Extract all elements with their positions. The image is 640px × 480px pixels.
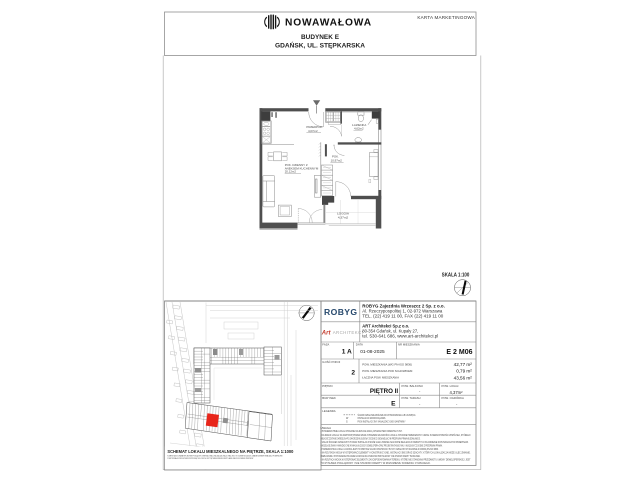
svg-text:POW. MIESZKANIA (WG PN-ISO 983: POW. MIESZKANIA (WG PN-ISO 9836)	[362, 362, 412, 366]
svg-text:POW. OGRÓDKA: POW. OGRÓDKA	[442, 395, 465, 400]
svg-text:PIĘTRO II: PIĘTRO II	[370, 388, 398, 395]
svg-text:PION INSTALACYJNY KANALIZACYJN: PION INSTALACYJNY KANALIZACYJNO-SANITARN…	[358, 420, 406, 423]
svg-text:BUDYNEK E: BUDYNEK E	[301, 34, 340, 41]
svg-text:UWAGA: UWAGA	[321, 426, 332, 430]
svg-text:WIELKOŚĆ ZOSTANIE OKREŚLONA PO: WIELKOŚĆ ZOSTANIE OKREŚLONA PO ZAKOŃCZEN…	[321, 437, 421, 440]
svg-text:tel. 530-641 686, www.art-arch: tel. 530-641 686, www.art-architekci.pl	[362, 333, 438, 338]
svg-text:LEGENDA: LEGENDA	[322, 409, 336, 413]
svg-text:43,56 m²: 43,56 m²	[454, 375, 473, 380]
svg-text:BUDYNEK: BUDYNEK	[322, 396, 336, 400]
svg-text:POWSTRZYMAŁA U PRODUKTEM ROZST: POWSTRZYMAŁA U PRODUKTEM ROZSTRZYGNIĘĆ K…	[167, 457, 253, 460]
svg-text:SCHEMAT LOKALU MIESZKALNEGO NA: SCHEMAT LOKALU MIESZKALNEGO NA PIĘTRZE, …	[167, 449, 294, 454]
svg-text:- NA RZUTACH MOGĄ WYSTĘPOWAĆ E: - NA RZUTACH MOGĄ WYSTĘPOWAĆ ELEMENTY ZA…	[321, 459, 471, 462]
svg-text:- WSZELKIE ZMIANY ARANŻACYJNE: - WSZELKIE ZMIANY ARANŻACYJNE WYMAGAJĄ Z…	[321, 444, 443, 447]
svg-text:NOWAWAŁOWA: NOWAWAŁOWA	[285, 17, 372, 29]
svg-text:0,79 m²: 0,79 m²	[456, 369, 472, 374]
svg-text:KARTA MARKETINGOWA: KARTA MARKETINGOWA	[417, 15, 475, 20]
svg-text:ROBYG: ROBYG	[324, 307, 358, 317]
svg-text:POW. BALKONU: POW. BALKONU	[402, 384, 423, 388]
svg-text:42,77 m²: 42,77 m²	[454, 362, 473, 367]
svg-text:4,62m2: 4,62m2	[354, 126, 364, 130]
svg-text:2: 2	[351, 370, 355, 377]
svg-text:TO RYSUNEK POGLĄDOWY I NIE STA: TO RYSUNEK POGLĄDOWY I NIE STANOWI OFERT…	[321, 462, 431, 465]
svg-text:10,97m2: 10,97m2	[331, 159, 343, 163]
svg-text:TEL. (22) 419 11 00, FAX (22): TEL. (22) 419 11 00, FAX (22) 419 11 00	[362, 314, 444, 319]
svg-text:Art: Art	[321, 330, 332, 336]
svg-text:4,37m²: 4,37m²	[450, 390, 464, 395]
svg-text:ILOŚĆ POKOI: ILOŚĆ POKOI	[322, 359, 340, 364]
svg-text:20,12m2: 20,12m2	[285, 170, 297, 174]
svg-text:01-08-2025: 01-08-2025	[360, 349, 385, 355]
svg-text:GDAŃSK, UL. STĘPKARSKA: GDAŃSK, UL. STĘPKARSKA	[275, 41, 365, 50]
svg-text:4,07m2: 4,07m2	[308, 129, 318, 133]
svg-text:DATA: DATA	[356, 343, 363, 347]
svg-text:E 2 M06: E 2 M06	[446, 349, 472, 356]
svg-text:FAZA: FAZA	[322, 343, 329, 347]
svg-text:PIĘTRO: PIĘTRO	[322, 384, 333, 388]
svg-text:SKALA 1:100: SKALA 1:100	[442, 273, 470, 279]
svg-text:E: E	[391, 401, 396, 408]
svg-text:4,37m2: 4,37m2	[338, 215, 349, 219]
svg-text:POW. MIESZKANIA POD SCHOWKIEM: POW. MIESZKANIA POD SCHOWKIEM	[362, 369, 413, 373]
svg-text:KOMENT MA ON CHARAKTER JEDYNIE: KOMENT MA ON CHARAKTER JEDYNIE POGLĄDOWY…	[167, 454, 282, 457]
svg-text:POW. TARASU: POW. TARASU	[402, 396, 421, 400]
svg-text:- POWIERZCHNIE LOKALI PODANE N: - POWIERZCHNIE LOKALI PODANE NA RZUCIE M…	[321, 430, 403, 433]
svg-text:1 A: 1 A	[342, 349, 352, 356]
svg-text:NR MIESZKANIA: NR MIESZKANIA	[398, 343, 420, 347]
svg-text:ŁĄCZNA POW. MIESZKANIA: ŁĄCZNA POW. MIESZKANIA	[362, 375, 399, 379]
svg-text:POW. LOGGI: POW. LOGGI	[442, 384, 459, 388]
svg-text:- NA RZUTACH MOGĄ WYSTĘPOWAĆ E: - NA RZUTACH MOGĄ WYSTĘPOWAĆ ELEMENTY KO…	[321, 452, 471, 455]
svg-text:ARCHITEKCI: ARCHITEKCI	[333, 330, 364, 335]
